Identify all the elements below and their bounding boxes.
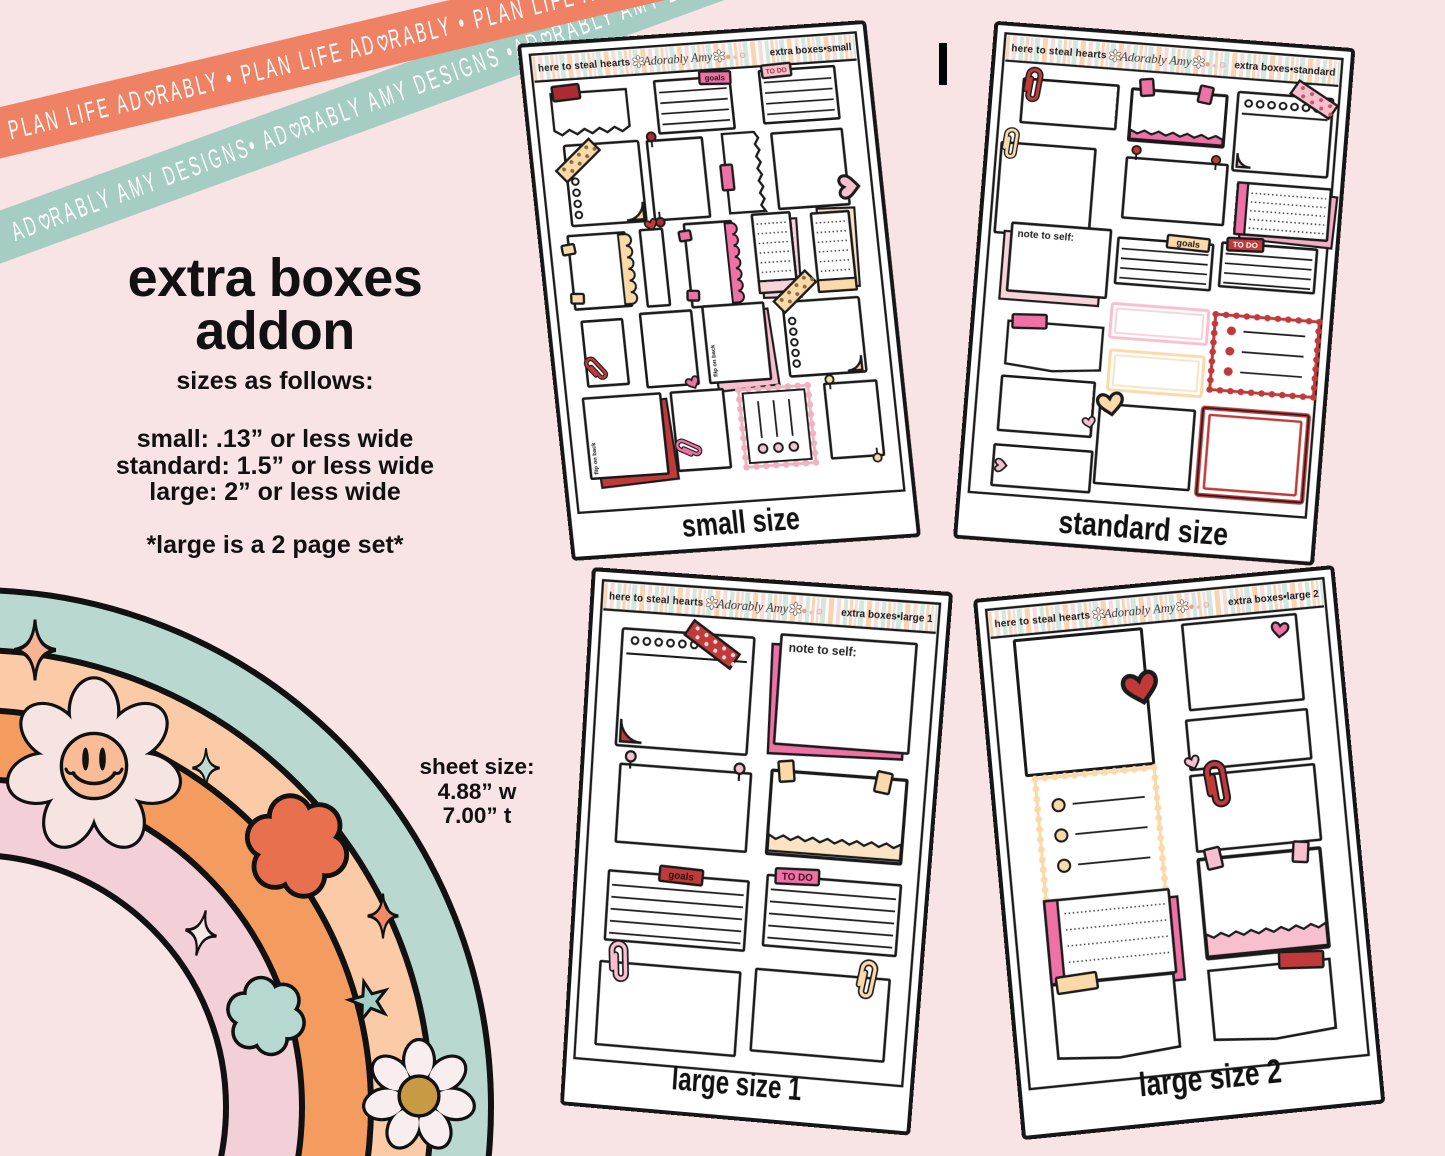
- svg-text:large size 1: large size 1: [671, 1061, 803, 1108]
- svg-text:TO DO: TO DO: [1233, 240, 1259, 250]
- svg-text:large size 2: large size 2: [1137, 1053, 1283, 1105]
- svg-text:small size: small size: [680, 500, 801, 544]
- svg-text:TO DO: TO DO: [782, 872, 813, 884]
- svg-text:standard size: standard size: [1057, 504, 1229, 552]
- svg-text:goals: goals: [704, 73, 725, 82]
